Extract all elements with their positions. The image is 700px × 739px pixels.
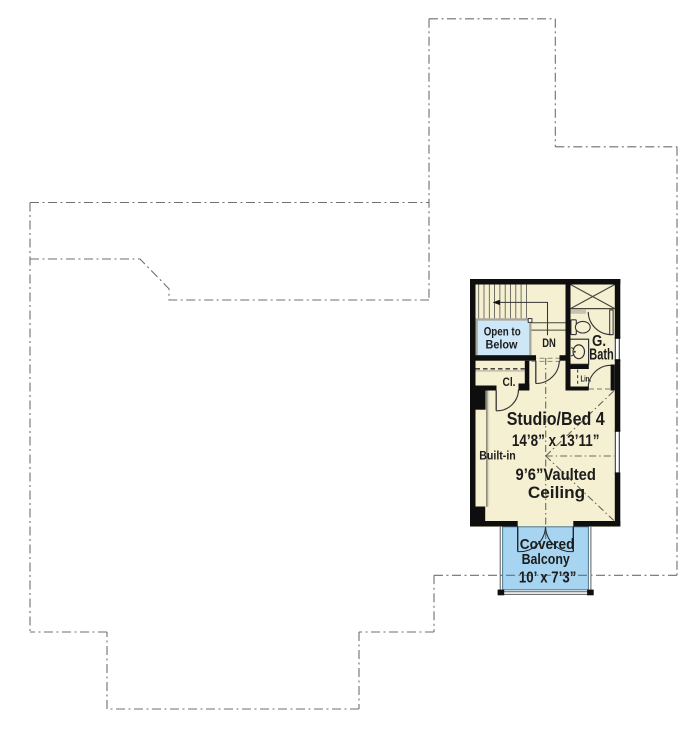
svg-text:14’8” x 13’11”: 14’8” x 13’11” (512, 432, 600, 450)
svg-text:Lin.: Lin. (580, 373, 591, 383)
svg-text:Ceiling: Ceiling (528, 484, 585, 502)
svg-text:Cl.: Cl. (503, 375, 516, 389)
svg-text:Below: Below (486, 339, 518, 351)
svg-text:Studio/Bed 4: Studio/Bed 4 (507, 409, 605, 429)
svg-text:DN: DN (542, 338, 556, 350)
svg-text:Balcony: Balcony (522, 551, 571, 568)
svg-text:Built-in: Built-in (479, 451, 516, 463)
svg-text:9’6”Vaulted: 9’6”Vaulted (516, 466, 596, 484)
svg-text:Open to: Open to (484, 327, 521, 339)
svg-text:Bath: Bath (589, 346, 614, 363)
svg-text:10’ x 7’3”: 10’ x 7’3” (519, 569, 577, 586)
